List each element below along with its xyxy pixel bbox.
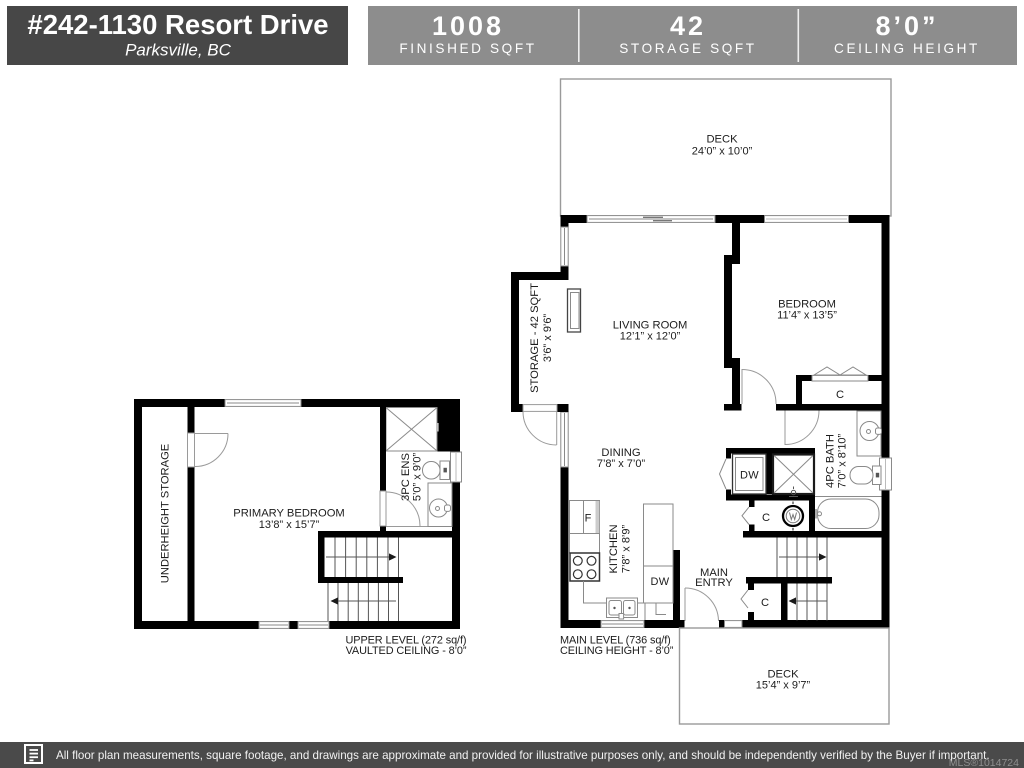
- svg-text:42: 42: [670, 11, 706, 41]
- svg-text:FINISHED SQFT: FINISHED SQFT: [399, 41, 536, 56]
- svg-text:PRIMARY BEDROOM: PRIMARY BEDROOM: [233, 508, 344, 520]
- svg-text:All floor plan measurements, s: All floor plan measurements, square foot…: [56, 749, 990, 762]
- svg-text:VAULTED CEILING - 8’0”: VAULTED CEILING - 8’0”: [346, 645, 467, 657]
- svg-text:KITCHEN: KITCHEN: [608, 524, 620, 573]
- svg-text:STORAGE - 42 SQFT: STORAGE - 42 SQFT: [529, 283, 541, 393]
- svg-text:UNDERHEIGHT STORAGE: UNDERHEIGHT STORAGE: [160, 444, 172, 583]
- svg-text:5’0” x 9’0”: 5’0” x 9’0”: [412, 453, 424, 502]
- svg-text:11’4” x 13’5”: 11’4” x 13’5”: [777, 310, 837, 322]
- svg-text:3PC ENS: 3PC ENS: [400, 453, 412, 501]
- svg-text:7’0” x 8’10”: 7’0” x 8’10”: [837, 433, 849, 488]
- svg-text:STORAGE SQFT: STORAGE SQFT: [619, 41, 756, 56]
- svg-text:13’8” x 15’7”: 13’8” x 15’7”: [259, 519, 320, 531]
- svg-text:DW: DW: [740, 470, 759, 482]
- svg-text:C: C: [762, 512, 770, 524]
- svg-text:C: C: [836, 389, 844, 401]
- svg-text:7’8” x 8’9”: 7’8” x 8’9”: [621, 525, 633, 574]
- svg-text:DW: DW: [651, 576, 670, 588]
- svg-text:CEILING HEIGHT - 8’0”: CEILING HEIGHT - 8’0”: [560, 645, 674, 657]
- svg-text:#242-1130 Resort Drive: #242-1130 Resort Drive: [27, 9, 328, 40]
- svg-text:MLS®1014724: MLS®1014724: [949, 757, 1019, 768]
- svg-text:F: F: [585, 513, 592, 525]
- svg-text:1008: 1008: [432, 11, 504, 41]
- svg-text:15’4” x 9’7”: 15’4” x 9’7”: [756, 680, 811, 692]
- svg-text:24’0” x 10’0”: 24’0” x 10’0”: [692, 146, 753, 158]
- svg-text:4PC BATH: 4PC BATH: [825, 434, 837, 488]
- svg-text:DECK: DECK: [706, 134, 738, 146]
- svg-text:8’0”: 8’0”: [875, 11, 938, 41]
- svg-text:ENTRY: ENTRY: [695, 577, 733, 589]
- svg-text:12’1” x 12’0”: 12’1” x 12’0”: [620, 331, 681, 343]
- svg-text:CEILING HEIGHT: CEILING HEIGHT: [834, 41, 980, 56]
- svg-text:3’6” x 9’6”: 3’6” x 9’6”: [542, 314, 554, 363]
- svg-text:7’8” x 7’0”: 7’8” x 7’0”: [597, 458, 646, 470]
- svg-text:Parksville, BC: Parksville, BC: [125, 41, 232, 60]
- svg-text:C: C: [761, 597, 769, 609]
